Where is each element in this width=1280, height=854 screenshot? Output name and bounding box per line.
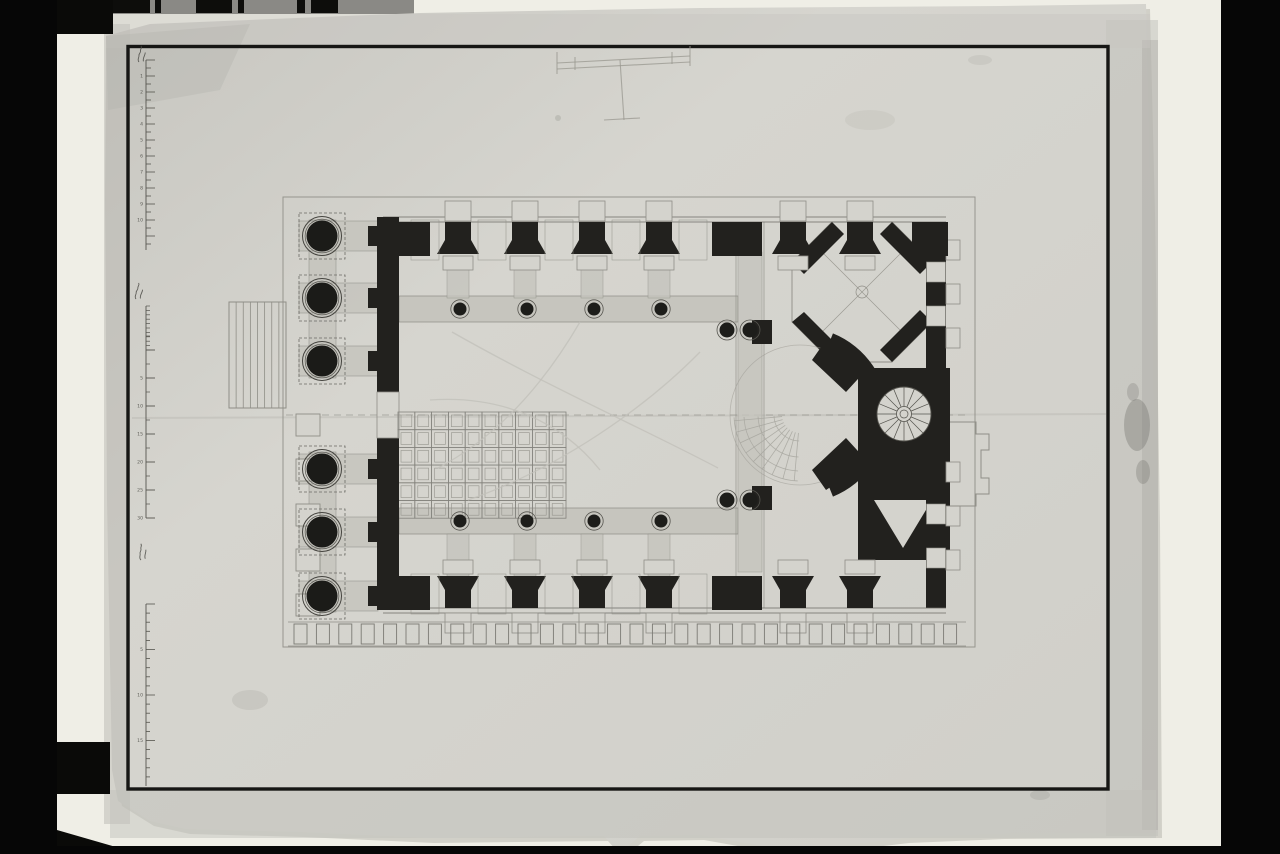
portico-column (307, 346, 338, 377)
portico-column (307, 454, 338, 485)
exterior-pilaster (847, 201, 873, 221)
portico-column (307, 283, 338, 314)
strip-block (155, 0, 161, 13)
platform-pilaster (296, 414, 320, 436)
aisle-column (521, 303, 534, 316)
film-edge-bottom (0, 846, 1280, 854)
ruler-numeral: 10 (137, 218, 143, 224)
paper-edge-shade (110, 790, 1156, 838)
exterior-pilaster (847, 613, 873, 633)
strip-block (297, 0, 305, 13)
east-wall-window (927, 548, 946, 568)
photographic-scale-strip (106, 0, 414, 14)
film-mask-bottom-left (56, 742, 110, 794)
pilaster-base (845, 256, 875, 270)
ruler-numeral: 5 (140, 376, 143, 382)
pilaster-base (845, 560, 875, 574)
strip-block (311, 0, 338, 13)
ruler-numeral: 6 (140, 154, 143, 160)
ruler-numeral: 15 (137, 738, 143, 744)
chancel-band (738, 252, 762, 572)
west-wall-pilaster (368, 351, 377, 371)
strip-block (196, 0, 232, 13)
archival-photograph: 123456789105101520253051015 (0, 0, 1280, 854)
film-edge-left (0, 0, 57, 854)
stain (232, 690, 268, 710)
east-wall-window (927, 504, 946, 524)
pilaster-base (577, 256, 607, 270)
portico-column (307, 581, 338, 612)
aisle-column (521, 515, 534, 528)
west-wall-pilaster (368, 226, 377, 246)
east-buttress (946, 550, 960, 570)
paper-edge-shade (106, 14, 1150, 48)
crossing-column (720, 323, 735, 338)
ruler-numeral: 8 (140, 186, 143, 192)
paper-edge-shade (104, 24, 130, 824)
stain (845, 110, 895, 130)
ruler-numeral: 15 (137, 432, 143, 438)
east-wall-window (927, 306, 946, 326)
ruler-numeral: 2 (140, 90, 143, 96)
west-wall-pilaster (368, 522, 377, 542)
ruler-numeral: 30 (137, 516, 143, 522)
floor-plan-scene: 123456789105101520253051015 (0, 0, 1280, 854)
colonnade-band (399, 508, 738, 534)
west-wall-pilaster (368, 586, 377, 606)
pilaster-base (778, 256, 808, 270)
west-wall-pilaster (368, 288, 377, 308)
stain (968, 55, 992, 65)
east-buttress (946, 462, 960, 482)
aisle-column (454, 303, 467, 316)
west-wall (377, 438, 399, 608)
pilaster-base (443, 256, 473, 270)
pilaster-base (644, 256, 674, 270)
stain (555, 115, 561, 121)
exterior-pilaster (512, 613, 538, 633)
aisle-column (588, 303, 601, 316)
exterior-pilaster (579, 613, 605, 633)
aisle-column (655, 515, 668, 528)
pilaster-base (778, 560, 808, 574)
pilaster-base (443, 560, 473, 574)
stair-newel (897, 407, 912, 422)
portico-column (307, 221, 338, 252)
ruler-numeral: 10 (137, 693, 143, 699)
pilaster-base (510, 256, 540, 270)
strip-block (238, 0, 244, 13)
ruler-numeral: 5 (140, 647, 143, 653)
east-buttress (946, 506, 960, 526)
exterior-pilaster (579, 201, 605, 221)
pilaster-base (644, 560, 674, 574)
exterior-pilaster (646, 613, 672, 633)
stain (1136, 460, 1150, 484)
crossing-column (743, 323, 758, 338)
west-wall-pilaster (368, 459, 377, 479)
east-wall (926, 462, 946, 608)
film-edge-right (1221, 0, 1280, 854)
ruler-numeral: 10 (137, 404, 143, 410)
grey-strip (106, 0, 414, 14)
exterior-pilaster (445, 613, 471, 633)
stain (1127, 383, 1139, 401)
corner-pier (912, 222, 948, 256)
ruler-numeral: 20 (137, 460, 143, 466)
corner-pier (712, 222, 762, 256)
east-buttress (946, 240, 960, 260)
exterior-pilaster (445, 201, 471, 221)
ruler-numeral: 9 (140, 202, 143, 208)
crossing-column (720, 493, 735, 508)
exterior-pilaster (646, 201, 672, 221)
portico-column (307, 517, 338, 548)
strip-block (112, 0, 150, 13)
drawing-sheet (104, 4, 1162, 852)
exterior-pilaster (780, 201, 806, 221)
colonnade-band (399, 296, 738, 322)
east-buttress (946, 328, 960, 348)
ruler-numeral: 3 (140, 106, 143, 112)
platform-pilaster (296, 549, 320, 571)
exterior-pilaster (512, 201, 538, 221)
east-buttress (946, 284, 960, 304)
crossing-column (743, 493, 758, 508)
stain (1030, 790, 1050, 800)
east-wall-window (927, 262, 946, 282)
stain (1124, 399, 1150, 451)
ruler-numeral: 7 (140, 170, 143, 176)
exterior-pilaster (780, 613, 806, 633)
ruler-numeral: 4 (140, 122, 143, 128)
ruler-numeral: 25 (137, 488, 143, 494)
ruler-numeral: 1 (140, 74, 143, 80)
aisle-column (588, 515, 601, 528)
corner-pier (712, 576, 762, 610)
ruler-numeral: 5 (140, 138, 143, 144)
west-wall (377, 217, 399, 392)
pilaster-base (577, 560, 607, 574)
aisle-column (655, 303, 668, 316)
paper-sheet (105, 4, 1158, 847)
pilaster-base (510, 560, 540, 574)
aisle-column (454, 515, 467, 528)
